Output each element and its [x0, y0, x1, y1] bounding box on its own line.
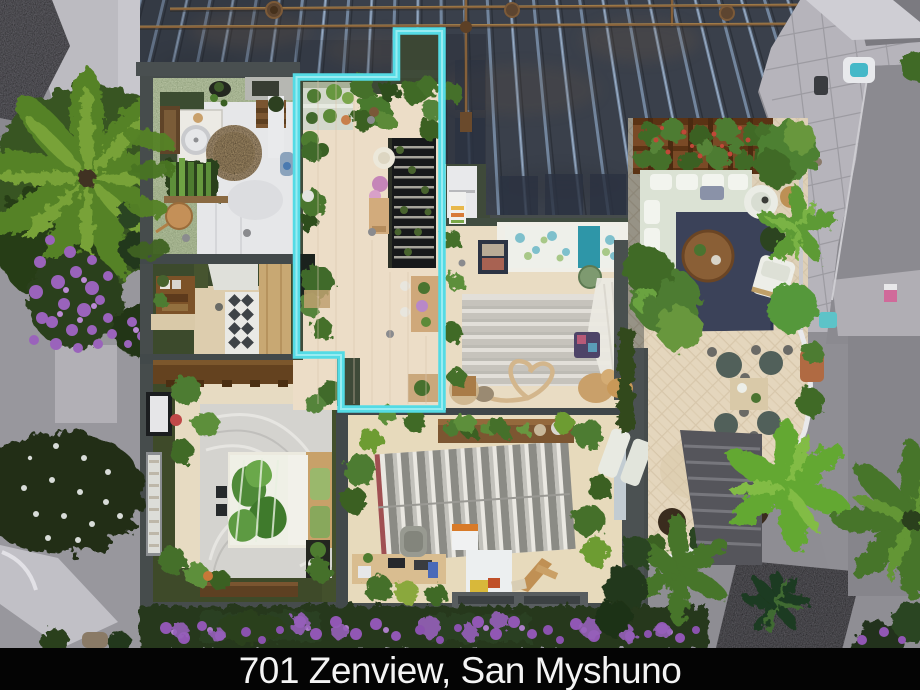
- svg-text:701 Zenview, San Myshuno: 701 Zenview, San Myshuno: [239, 650, 682, 690]
